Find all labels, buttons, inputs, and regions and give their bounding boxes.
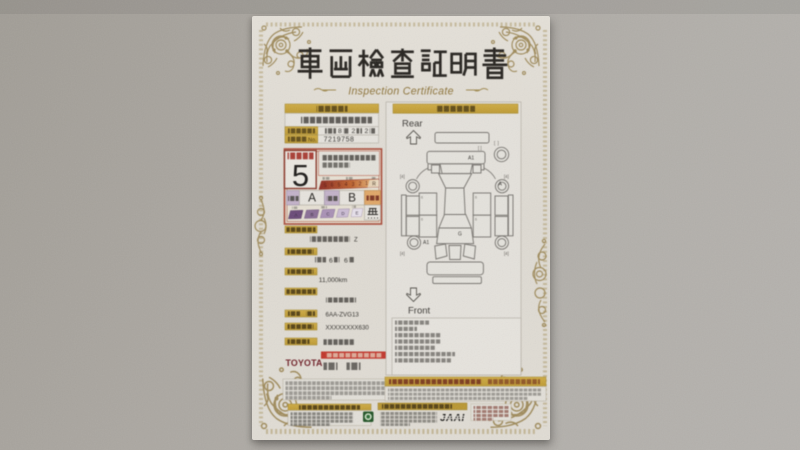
svg-text:E: E	[355, 211, 358, 216]
svg-text:Front: Front	[408, 306, 431, 317]
svg-text:1: 1	[365, 181, 368, 187]
svg-text:11,000km: 11,000km	[319, 277, 348, 284]
svg-text:Z: Z	[354, 238, 358, 244]
svg-text:4: 4	[345, 182, 348, 188]
svg-text:6: 6	[475, 218, 477, 222]
svg-text:7219758: 7219758	[324, 137, 355, 144]
svg-text:B: B	[310, 212, 313, 217]
svg-text:6: 6	[344, 257, 348, 264]
svg-text:[4]: [4]	[400, 251, 405, 256]
svg-text:G: G	[458, 232, 462, 238]
svg-text:[ ]: [ ]	[478, 146, 482, 151]
svg-text:No.: No.	[308, 137, 317, 143]
svg-text:A1: A1	[423, 240, 429, 246]
svg-text:R: R	[372, 182, 376, 188]
svg-text:3: 3	[352, 182, 355, 188]
svg-text:6: 6	[475, 196, 477, 200]
svg-text:6AA-ZVG13: 6AA-ZVG13	[326, 312, 360, 319]
svg-text:6: 6	[331, 183, 334, 189]
svg-text:[ ]: [ ]	[494, 141, 499, 146]
svg-text:[4]: [4]	[400, 174, 405, 179]
svg-text:5: 5	[338, 182, 341, 188]
svg-text:Rear: Rear	[402, 119, 423, 130]
svg-text:[4]: [4]	[504, 174, 509, 179]
svg-text:TOYOTA: TOYOTA	[286, 358, 323, 368]
svg-text:6: 6	[421, 196, 423, 200]
svg-text:6: 6	[421, 218, 423, 222]
svg-text:XXXXXXXX630: XXXXXXXX630	[326, 325, 370, 332]
svg-text:5: 5	[292, 158, 309, 193]
svg-text:[4]: [4]	[504, 251, 509, 256]
svg-text:8: 8	[338, 128, 342, 135]
svg-text:2: 2	[359, 182, 362, 188]
svg-text:A: A	[294, 213, 297, 218]
svg-text:A1: A1	[468, 156, 474, 162]
svg-text:A: A	[308, 191, 316, 205]
svg-text:6: 6	[329, 257, 333, 264]
svg-text:2: 2	[365, 128, 369, 135]
svg-text:2: 2	[352, 128, 356, 135]
svg-text:Inspection Certificate: Inspection Certificate	[348, 86, 454, 98]
svg-text:B: B	[348, 191, 356, 205]
